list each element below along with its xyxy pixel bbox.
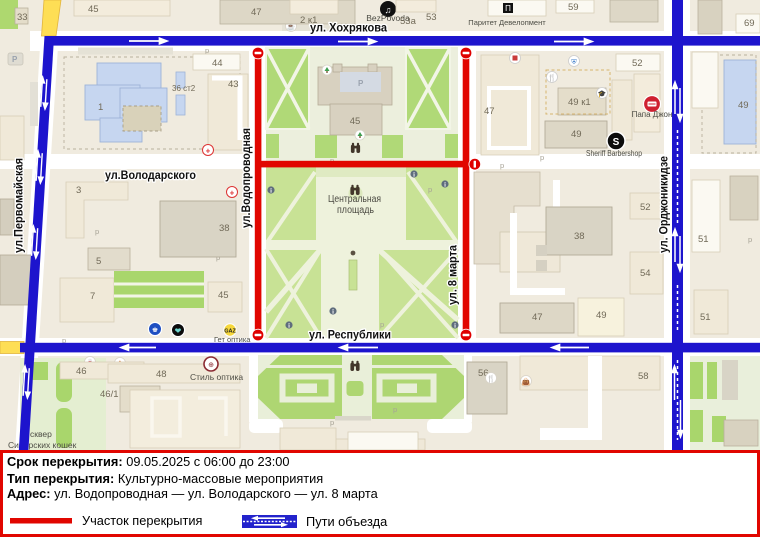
svg-text:🎓: 🎓 xyxy=(598,90,607,98)
svg-text:Sheriff Barbershop: Sheriff Barbershop xyxy=(586,149,642,158)
svg-text:🍴: 🍴 xyxy=(487,374,496,383)
svg-text:❤: ❤ xyxy=(175,327,182,336)
svg-text:P: P xyxy=(358,79,364,88)
svg-text:45: 45 xyxy=(88,4,99,15)
svg-text:52: 52 xyxy=(632,58,643,69)
svg-text:38: 38 xyxy=(219,223,230,234)
svg-text:53а: 53а xyxy=(400,16,417,27)
svg-text:59: 59 xyxy=(568,2,579,13)
svg-text:p: p xyxy=(428,185,432,194)
svg-text:49 к1: 49 к1 xyxy=(568,97,591,108)
svg-text:ул.Первомайская: ул.Первомайская xyxy=(14,158,26,253)
svg-text:Паритет Девелопмент: Паритет Девелопмент xyxy=(468,18,546,27)
svg-text:47: 47 xyxy=(484,106,495,117)
svg-text:46/1: 46/1 xyxy=(100,389,119,400)
svg-text:44: 44 xyxy=(212,58,223,69)
svg-text:Адрес: ул. Водопроводная — ул.: Адрес: ул. Водопроводная — ул. Володарск… xyxy=(7,486,379,501)
svg-text:54: 54 xyxy=(640,268,651,279)
svg-text:1: 1 xyxy=(98,102,103,113)
svg-text:p: p xyxy=(330,418,334,427)
svg-text:69: 69 xyxy=(744,18,755,29)
svg-text:47: 47 xyxy=(251,7,262,18)
svg-text:ул.Водопроводная: ул.Водопроводная xyxy=(241,128,253,228)
svg-text:Папа Джон: Папа Джон xyxy=(632,110,673,119)
svg-text:ул. Орджоникидзе: ул. Орджоникидзе xyxy=(659,156,671,253)
svg-text:Сибирских кошек: Сибирских кошек xyxy=(8,440,77,450)
svg-text:p: p xyxy=(540,153,544,162)
svg-text:49: 49 xyxy=(738,100,749,111)
svg-text:53: 53 xyxy=(426,12,437,23)
svg-text:43: 43 xyxy=(228,79,239,90)
svg-text:47: 47 xyxy=(532,312,543,323)
svg-text:Тип перекрытия: Культурно-масс: Тип перекрытия: Культурно-массовые мероп… xyxy=(7,471,323,486)
svg-text:46: 46 xyxy=(76,366,87,377)
svg-text:+: + xyxy=(230,188,235,197)
svg-text:площадь: площадь xyxy=(337,205,374,216)
svg-text:ул.Володарского: ул.Володарского xyxy=(105,170,196,182)
svg-text:51: 51 xyxy=(700,312,711,323)
svg-text:51: 51 xyxy=(698,234,709,245)
svg-text:ул. 8 марта: ул. 8 марта xyxy=(448,244,460,305)
svg-text:GAZ: GAZ xyxy=(224,329,236,335)
svg-text:38: 38 xyxy=(574,231,585,242)
svg-text:p: p xyxy=(393,405,397,414)
svg-text:49: 49 xyxy=(596,310,607,321)
svg-text:58: 58 xyxy=(638,371,649,382)
svg-text:45: 45 xyxy=(218,290,229,301)
svg-text:🍴: 🍴 xyxy=(548,73,557,82)
svg-text:p: p xyxy=(380,320,384,329)
svg-text:36 ст2: 36 ст2 xyxy=(172,84,196,93)
svg-text:p: p xyxy=(748,235,752,244)
svg-text:S: S xyxy=(613,137,620,148)
svg-text:Стиль оптика: Стиль оптика xyxy=(190,372,243,382)
svg-text:3: 3 xyxy=(76,185,81,196)
svg-text:ул. Хохрякова: ул. Хохрякова xyxy=(310,23,388,35)
svg-text:♚: ♚ xyxy=(152,326,158,334)
svg-text:П: П xyxy=(505,4,511,13)
svg-text:49: 49 xyxy=(571,129,582,140)
svg-text:👜: 👜 xyxy=(522,377,531,386)
svg-text:P: P xyxy=(12,55,18,64)
svg-text:Гет оптика: Гет оптика xyxy=(214,335,251,344)
svg-text:48: 48 xyxy=(156,369,167,380)
svg-text:сквер: сквер xyxy=(30,429,52,439)
svg-text:45: 45 xyxy=(350,116,361,127)
svg-text:⛨: ⛨ xyxy=(571,58,577,66)
svg-text:5: 5 xyxy=(96,256,101,267)
svg-text:p: p xyxy=(95,227,99,236)
svg-text:33: 33 xyxy=(17,12,28,23)
svg-text:Центральная: Центральная xyxy=(328,194,381,205)
svg-text:+: + xyxy=(206,146,211,155)
svg-text:Срок перекрытия: 09.05.2025 с: Срок перекрытия: 09.05.2025 с 06:00 до 2… xyxy=(7,454,290,469)
svg-text:7: 7 xyxy=(90,291,95,302)
svg-text:p: p xyxy=(500,161,504,170)
svg-text:ул. Республики: ул. Республики xyxy=(309,330,391,342)
svg-text:Участок перекрытия: Участок перекрытия xyxy=(82,513,203,528)
svg-text:⊕: ⊕ xyxy=(208,362,214,369)
svg-text:Пути объезда: Пути объезда xyxy=(306,514,388,529)
svg-text:52: 52 xyxy=(640,202,651,213)
